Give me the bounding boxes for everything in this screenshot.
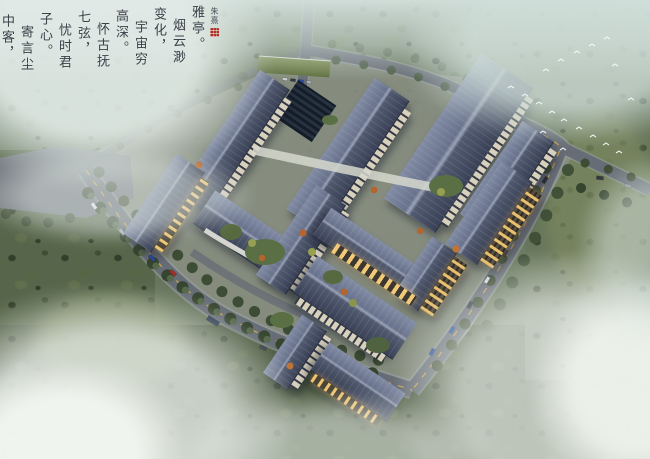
- calligraphy-column: 雅亭。: [190, 5, 203, 125]
- calligraphy-column: 寄言尘: [19, 25, 32, 125]
- grass-glade-left: [35, 295, 185, 390]
- calligraphy-column: 高深。: [114, 9, 127, 125]
- car: [169, 269, 177, 276]
- calligraphy-column: 烟云渺: [171, 18, 184, 125]
- seal-stamp-icon: [210, 28, 219, 37]
- calligraphy-column: 变化，: [152, 7, 165, 125]
- calligraphy-panel: 朱熹 雅亭。烟云渺变化，宇宙穷高深。怀古抚七弦，忧时君子心。寄言尘中客，寻芳谊: [8, 5, 220, 125]
- calligraphy-column: 中客，: [0, 14, 13, 125]
- car: [484, 276, 491, 284]
- calligraphy-column: 忧时君: [57, 23, 70, 125]
- calligraphy-column: 子心。: [38, 12, 51, 125]
- aerial-rendering-scene: 朱熹 雅亭。烟云渺变化，宇宙穷高深。怀古抚七弦，忧时君子心。寄言尘中客，寻芳谊: [0, 0, 650, 459]
- artist-signature: 朱熹: [209, 7, 220, 25]
- grass-glade-right: [545, 110, 650, 300]
- calligraphy-column: 怀古抚: [95, 22, 108, 126]
- signature-column: 朱熹: [209, 7, 220, 125]
- calligraphy-column: 宇宙穷: [133, 20, 146, 125]
- calligraphy-column: 七弦，: [76, 10, 89, 125]
- car: [467, 301, 473, 309]
